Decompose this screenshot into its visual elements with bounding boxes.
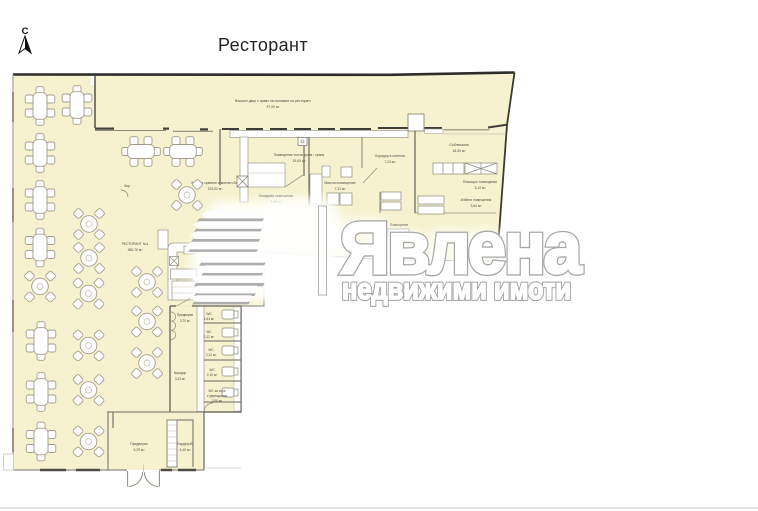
svg-text:Ресторант: Ресторант	[218, 35, 308, 55]
svg-text:бар: бар	[124, 184, 130, 188]
svg-text:5,29 м²: 5,29 м²	[133, 448, 145, 452]
svg-text:4,40 м²: 4,40 м²	[179, 448, 191, 452]
svg-text:Избени помещения: Избени помещения	[461, 198, 492, 202]
svg-text:7,31 м²: 7,31 м²	[334, 187, 346, 191]
svg-text:380,76 м²: 380,76 м²	[128, 248, 144, 252]
svg-text:Коридор в котелна: Коридор в котелна	[375, 154, 405, 158]
svg-text:Коридор: Коридор	[174, 371, 187, 375]
svg-text:Помощно помещение: Помощно помещение	[463, 180, 497, 184]
svg-text:2,12 м²: 2,12 м²	[204, 335, 214, 339]
svg-text:Предверие: Предверие	[130, 442, 148, 446]
svg-text:15,00 м²: 15,00 м²	[293, 159, 307, 163]
svg-text:WC: WC	[209, 368, 215, 372]
svg-text:203,02 м²: 203,02 м²	[208, 187, 224, 191]
svg-text:3,50 м²: 3,50 м²	[212, 399, 222, 403]
svg-text:Съблекалня: Съблекалня	[449, 143, 469, 147]
svg-text:РЕСТОРАНТ №1: РЕСТОРАНТ №1	[122, 242, 149, 246]
svg-text:WC: WC	[206, 330, 212, 334]
svg-text:97,00 м²: 97,00 м²	[267, 105, 281, 109]
svg-text:Гардероб: Гардероб	[178, 442, 193, 446]
svg-text:WC: WC	[206, 312, 212, 316]
svg-text:с увреждания: с увреждания	[207, 394, 228, 398]
svg-text:2,10 м²: 2,10 м²	[207, 373, 217, 377]
svg-text:Предверие: Предверие	[177, 313, 194, 317]
svg-text:7,24 м²: 7,24 м²	[384, 160, 396, 164]
svg-text:3,10 м²: 3,10 м²	[474, 186, 486, 190]
svg-text:недвижими имоти: недвижими имоти	[342, 273, 571, 306]
svg-text:WC за хора: WC за хора	[208, 389, 225, 393]
svg-text:3,43 м²: 3,43 м²	[175, 377, 185, 381]
svg-text:Помещение топла кухня / храна: Помещение топла кухня / храна	[274, 153, 325, 157]
svg-text:Миячно помещение: Миячно помещение	[324, 181, 355, 185]
svg-text:3,70 м²: 3,70 м²	[180, 319, 190, 323]
svg-text:Складова помещения: Складова помещения	[259, 194, 294, 198]
svg-text:1,61 м²: 1,61 м²	[204, 317, 214, 321]
svg-text:2,12 м²: 2,12 м²	[206, 353, 216, 357]
svg-text:Външен двор с право на ползван: Външен двор с право на ползване на ресто…	[235, 99, 311, 103]
svg-text:WC: WC	[208, 348, 214, 352]
svg-text:16,00 м²: 16,00 м²	[453, 149, 467, 153]
